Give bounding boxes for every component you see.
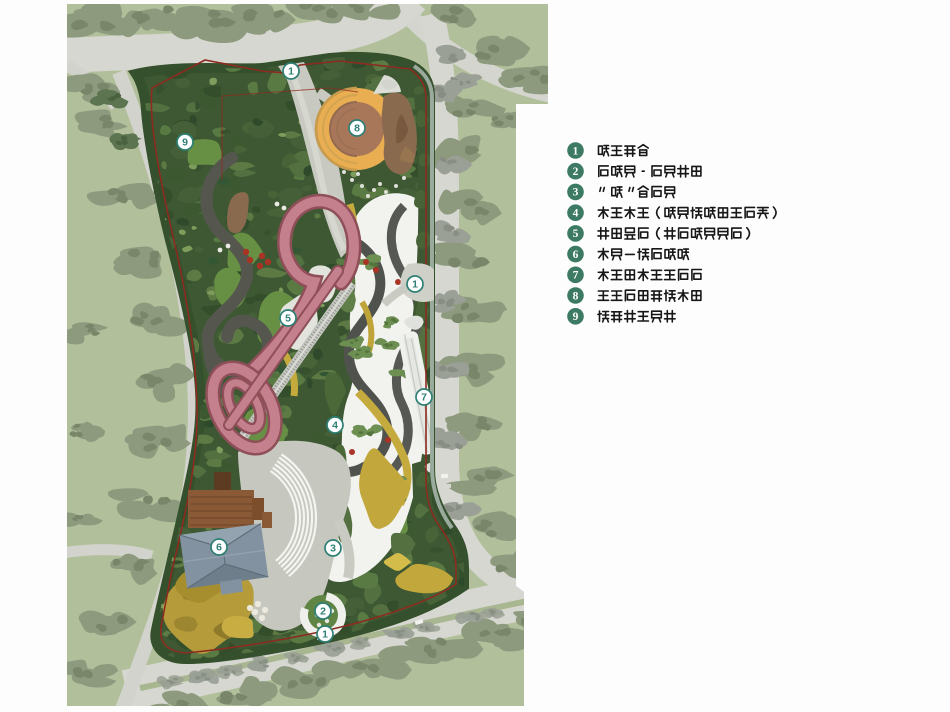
svg-text:3: 3 bbox=[573, 187, 579, 199]
svg-text:5: 5 bbox=[573, 228, 579, 240]
svg-text:2: 2 bbox=[320, 606, 326, 618]
svg-text:5: 5 bbox=[285, 313, 291, 325]
svg-text:8: 8 bbox=[354, 123, 360, 135]
svg-text:1: 1 bbox=[288, 66, 294, 78]
svg-text:1: 1 bbox=[322, 629, 328, 641]
svg-text:6: 6 bbox=[573, 249, 579, 261]
svg-text:9: 9 bbox=[573, 311, 579, 323]
svg-text:4: 4 bbox=[573, 208, 579, 220]
svg-text:1: 1 bbox=[412, 279, 418, 291]
svg-text:7: 7 bbox=[573, 270, 579, 282]
svg-text:6: 6 bbox=[216, 542, 222, 554]
svg-text:9: 9 bbox=[182, 137, 188, 149]
svg-text:7: 7 bbox=[421, 392, 427, 404]
svg-text:2: 2 bbox=[573, 166, 579, 178]
svg-text:1: 1 bbox=[573, 145, 579, 157]
svg-text:3: 3 bbox=[330, 543, 336, 555]
svg-text:4: 4 bbox=[332, 420, 338, 432]
svg-text:8: 8 bbox=[573, 290, 579, 302]
